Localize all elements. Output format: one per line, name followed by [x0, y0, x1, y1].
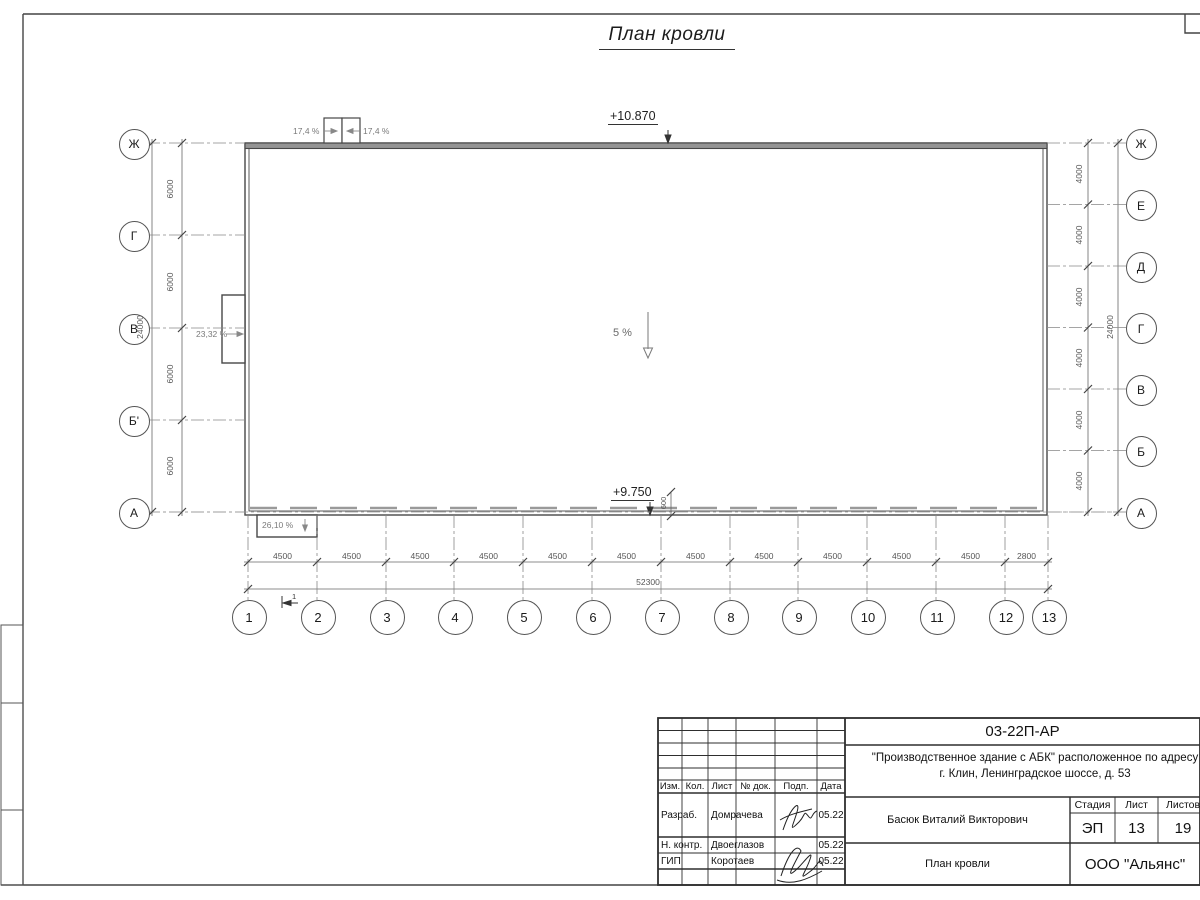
sheet-value: 13	[1115, 813, 1158, 843]
personnel-date: 05.22	[817, 793, 845, 837]
page-title: План кровли	[520, 24, 814, 50]
dim-bottom-segment: 4500	[947, 551, 995, 561]
axis-bubble-bottom-9: 9	[782, 600, 817, 635]
axis-bubble-bottom-1: 1	[232, 600, 267, 635]
doc-number: 03-22П-АР	[845, 718, 1200, 745]
project-name-line1: "Производственное здание с АБК" располож…	[845, 750, 1200, 766]
personnel-date: 05.22	[817, 853, 845, 869]
axis-bubble-right-Б: Б	[1126, 436, 1157, 467]
project-name-line2: г. Клин, Ленинградское шоссе, д. 53	[845, 766, 1200, 782]
stage-value: ЭП	[1070, 813, 1115, 843]
dim-right-segment: 4000	[1074, 213, 1084, 257]
dim-right-segment: 4000	[1074, 459, 1084, 503]
sheets-value: 19	[1158, 813, 1200, 843]
project-name: "Производственное здание с АБК" располож…	[845, 745, 1200, 797]
personnel-role: Н. контр.	[658, 837, 708, 853]
axis-bubble-bottom-2: 2	[301, 600, 336, 635]
personnel-name: Двоеглазов	[708, 837, 775, 853]
dim-left-segment: 6000	[165, 167, 175, 211]
dim-bottom-segment: 4500	[672, 551, 720, 561]
axis-bubble-right-Д: Д	[1126, 252, 1157, 283]
axis-bubble-right-А: А	[1126, 498, 1157, 529]
axis-bubble-left-Ж: Ж	[119, 129, 150, 160]
axis-bubble-right-Е: Е	[1126, 190, 1157, 221]
axis-bubble-bottom-5: 5	[507, 600, 542, 635]
axis-bubble-right-Ж: Ж	[1126, 129, 1157, 160]
axis-bubble-bottom-6: 6	[576, 600, 611, 635]
revision-header-1: Кол.	[682, 780, 708, 793]
dim-bottom-segment: 4500	[259, 551, 307, 561]
dim-bottom-total: 52300	[624, 577, 672, 587]
dim-right-segment: 4000	[1074, 275, 1084, 319]
axis-bubble-bottom-10: 10	[851, 600, 886, 635]
dim-bottom-segment: 4500	[534, 551, 582, 561]
personnel-role: ГИП	[658, 853, 708, 869]
parapet-dim: 600	[658, 481, 668, 525]
axis-bubble-bottom-3: 3	[370, 600, 405, 635]
section-mark-number: 1	[292, 592, 296, 601]
dim-right-total: 24000	[1105, 305, 1115, 349]
stage-label: Стадия	[1070, 797, 1115, 813]
axis-bubble-left-А: А	[119, 498, 150, 529]
personnel-date: 05.22	[817, 837, 845, 853]
company-name: ООО "Альянс"	[1070, 843, 1200, 885]
dim-bottom-segment: 4500	[603, 551, 651, 561]
personnel-name: Коротаев	[708, 853, 775, 869]
dim-left-segment: 6000	[165, 444, 175, 488]
axis-bubble-right-Г: Г	[1126, 313, 1157, 344]
dim-bottom-segment: 2800	[1003, 551, 1051, 561]
slope-bottom-left: 26,10 %	[262, 520, 293, 530]
axis-bubble-right-В: В	[1126, 375, 1157, 406]
slope-top-right: 17,4 %	[363, 126, 389, 136]
revision-header-4: Подп.	[775, 780, 817, 793]
dim-right-segment: 4000	[1074, 336, 1084, 380]
drawing-sheet: { "page_title": "План кровли", "plan": {…	[0, 0, 1200, 900]
axis-bubble-left-Б': Б'	[119, 406, 150, 437]
dim-bottom-segment: 4500	[740, 551, 788, 561]
dim-bottom-segment: 4500	[809, 551, 857, 561]
revision-header-5: Дата	[817, 780, 845, 793]
dim-bottom-segment: 4500	[396, 551, 444, 561]
sheet-title-cell: План кровли	[845, 843, 1070, 885]
revision-header-3: № док.	[736, 780, 775, 793]
axis-bubble-bottom-8: 8	[714, 600, 749, 635]
personnel-name: Домрачева	[708, 793, 775, 837]
sheet-label: Лист	[1115, 797, 1158, 813]
axis-bubble-bottom-4: 4	[438, 600, 473, 635]
dim-right-segment: 4000	[1074, 152, 1084, 196]
dim-left-segment: 6000	[165, 260, 175, 304]
sheets-label: Листов	[1158, 797, 1200, 813]
axis-bubble-left-Г: Г	[119, 221, 150, 252]
axis-bubble-bottom-11: 11	[920, 600, 955, 635]
dim-bottom-segment: 4500	[328, 551, 376, 561]
elevation-top: +10.870	[608, 109, 658, 125]
elevation-bottom: +9.750	[611, 485, 654, 501]
approved-by: Басюк Виталий Викторович	[845, 797, 1070, 843]
slope-left: 23,32 %	[196, 329, 227, 339]
axis-bubble-bottom-13: 13	[1032, 600, 1067, 635]
dim-right-segment: 4000	[1074, 398, 1084, 442]
axis-bubble-bottom-12: 12	[989, 600, 1024, 635]
revision-header-2: Лист	[708, 780, 736, 793]
slope-center: 5 %	[613, 327, 632, 339]
revision-header-0: Изм.	[658, 780, 682, 793]
dim-left-total: 24000	[135, 305, 145, 349]
dim-bottom-segment: 4500	[878, 551, 926, 561]
personnel-role: Разраб.	[658, 793, 708, 837]
dim-left-segment: 6000	[165, 352, 175, 396]
dim-bottom-segment: 4500	[465, 551, 513, 561]
slope-top-left: 17,4 %	[293, 126, 319, 136]
axis-bubble-bottom-7: 7	[645, 600, 680, 635]
